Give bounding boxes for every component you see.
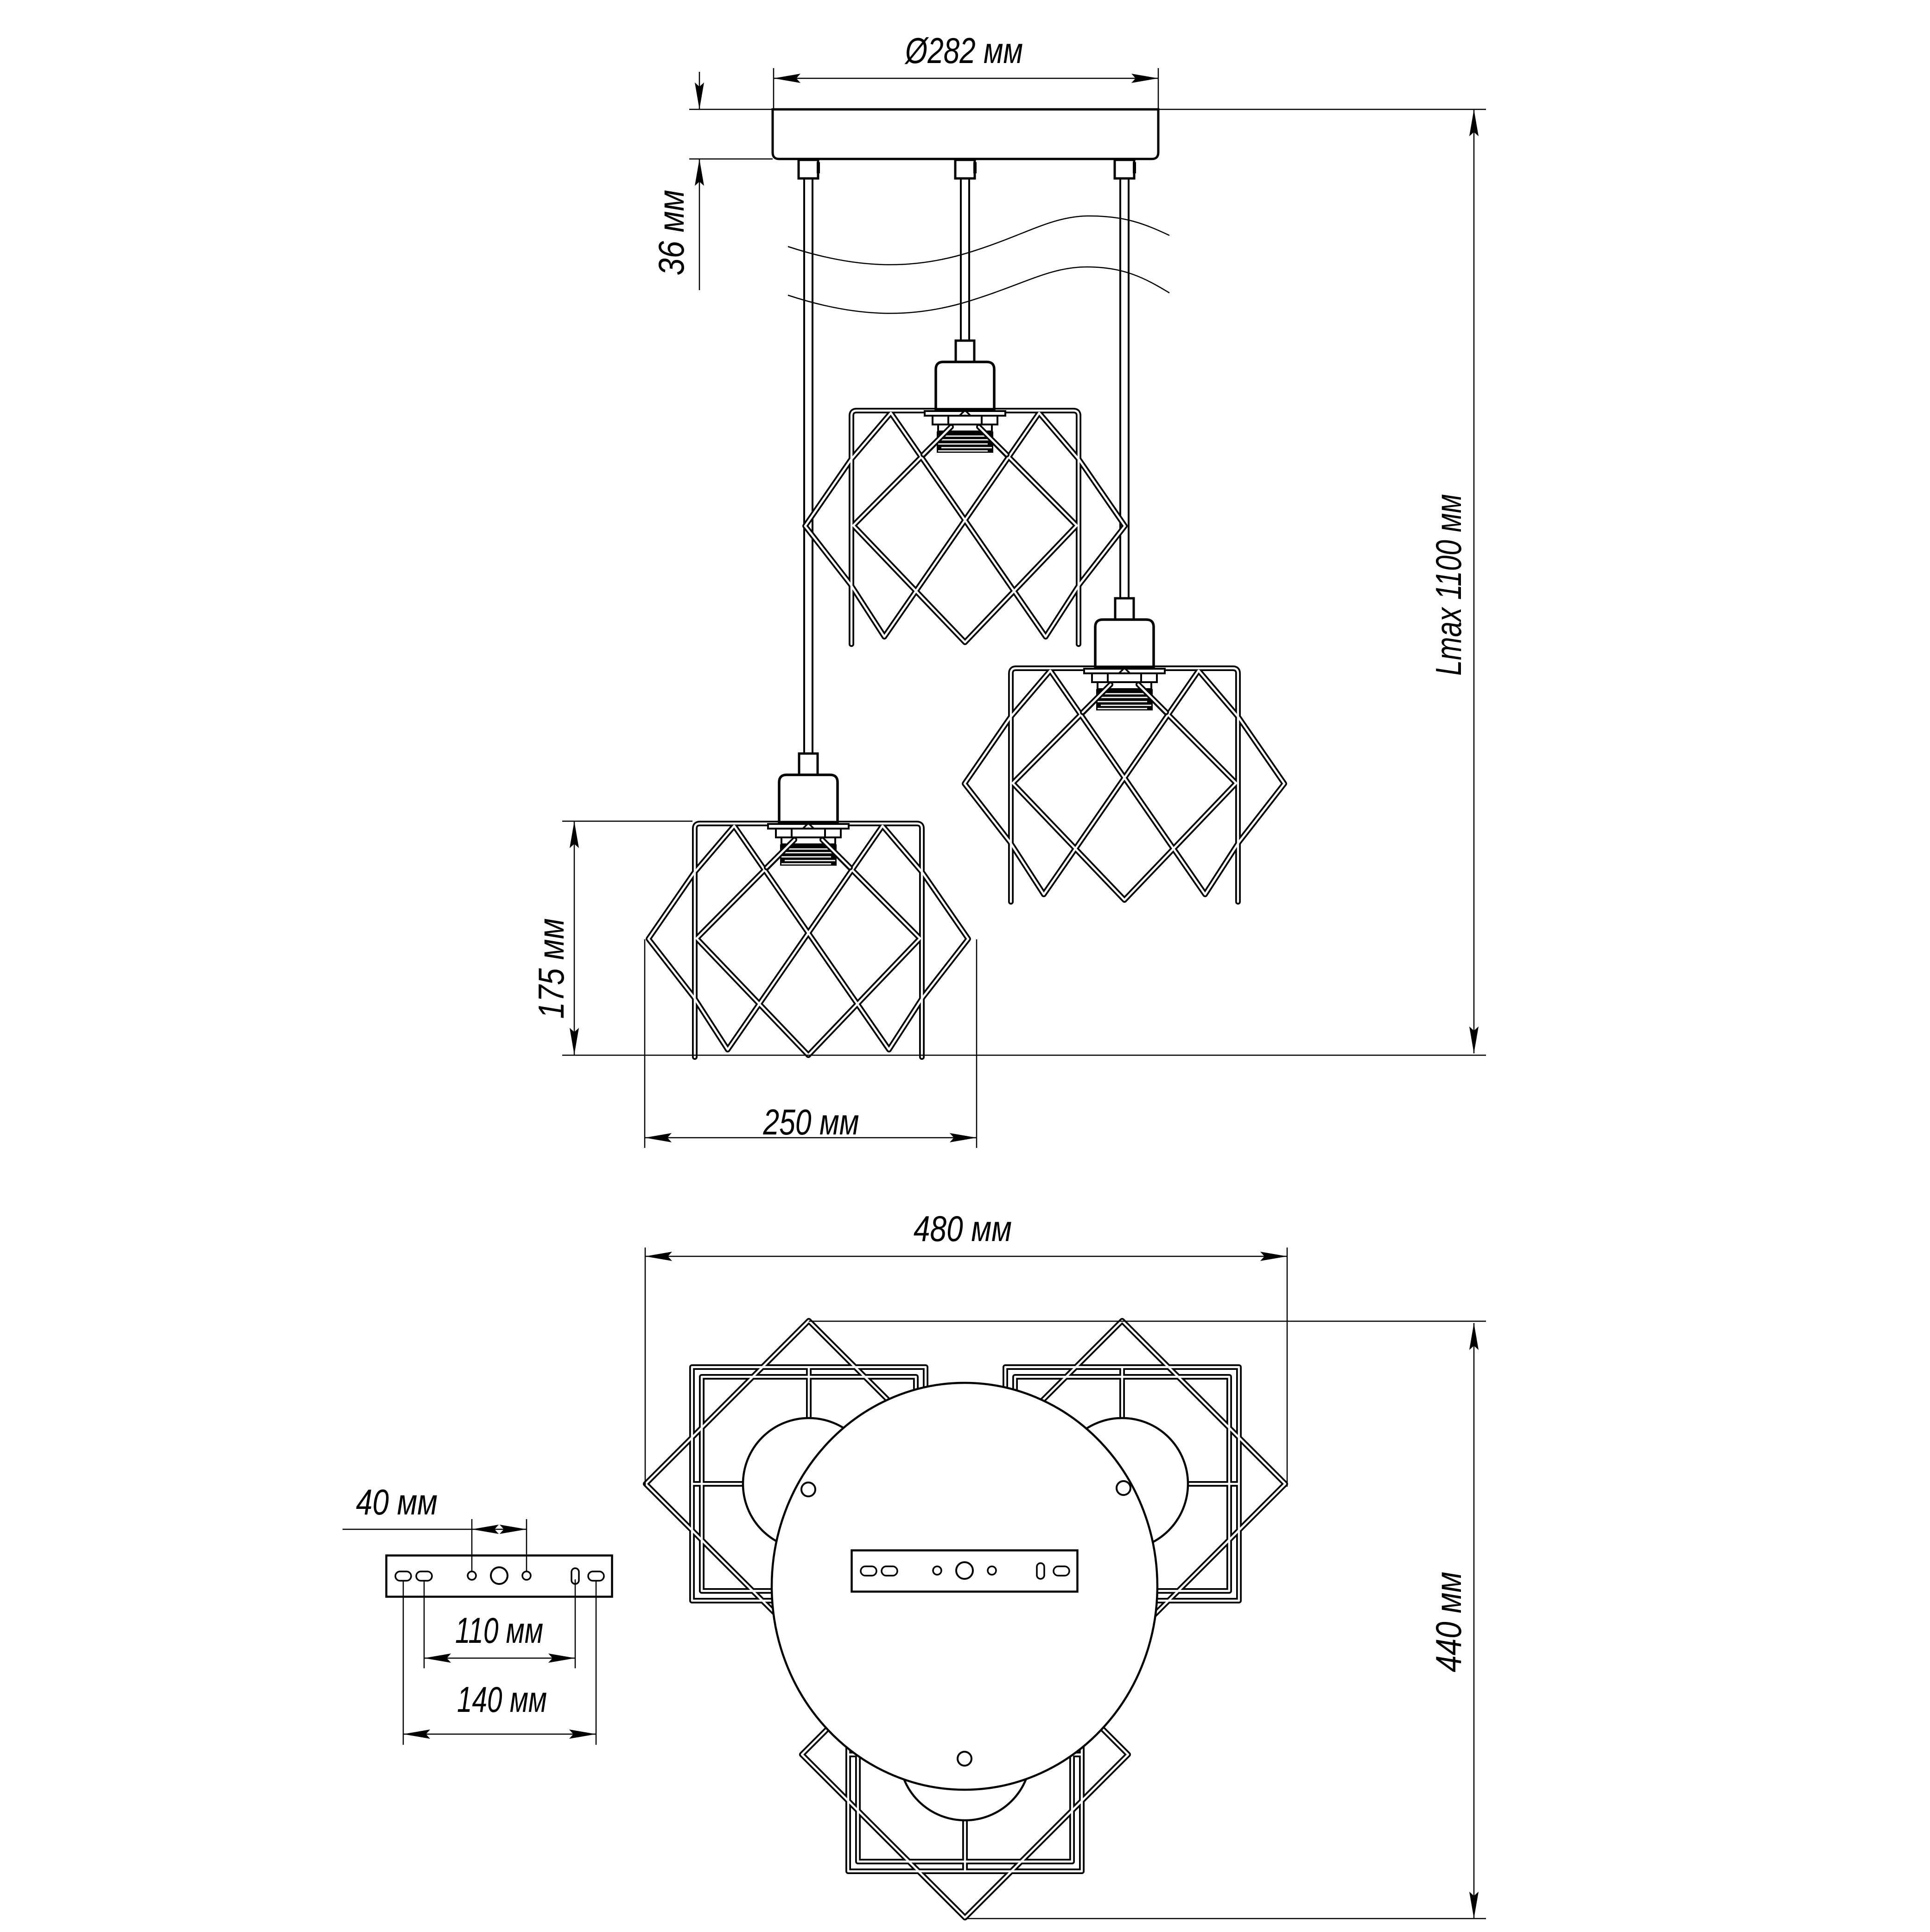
svg-text:140 мм: 140 мм (457, 1679, 547, 1720)
svg-text:36 мм: 36 мм (651, 190, 692, 276)
svg-text:480 мм: 480 мм (914, 1208, 1012, 1249)
svg-text:40 мм: 40 мм (356, 1482, 438, 1522)
svg-text:175 мм: 175 мм (531, 918, 571, 1019)
svg-text:110 мм: 110 мм (455, 1610, 543, 1651)
svg-text:440 мм: 440 мм (1428, 1572, 1469, 1672)
svg-text:Ø282 мм: Ø282 мм (904, 30, 1023, 71)
svg-text:Lmax 1100 мм: Lmax 1100 мм (1428, 494, 1469, 676)
svg-text:250 мм: 250 мм (763, 1102, 859, 1142)
